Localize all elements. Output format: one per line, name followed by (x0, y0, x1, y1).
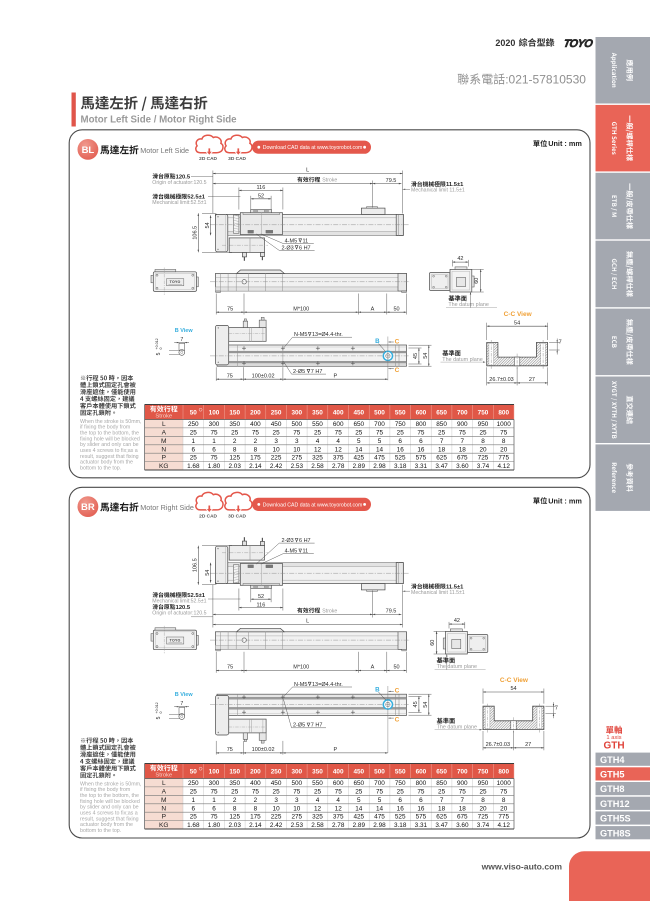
svg-text:BR: BR (81, 502, 95, 513)
svg-text:0: 0 (159, 348, 163, 350)
svg-text:75: 75 (227, 747, 233, 753)
svg-text:45: 45 (413, 701, 419, 707)
svg-text:75: 75 (227, 665, 233, 671)
svg-text:25: 25 (397, 429, 405, 436)
svg-text:B: B (375, 686, 380, 693)
svg-text:625: 625 (436, 455, 447, 462)
svg-text:8: 8 (481, 438, 485, 445)
svg-text:B View: B View (175, 328, 194, 334)
svg-text:25: 25 (190, 788, 198, 795)
svg-text:bottom to the top.: bottom to the top. (80, 828, 121, 834)
svg-text:1: 1 (192, 797, 196, 804)
svg-text:25: 25 (231, 429, 239, 436)
svg-text:L: L (162, 421, 166, 428)
svg-text:5: 5 (156, 352, 162, 355)
svg-text:2.53: 2.53 (291, 822, 304, 829)
svg-text:Stroke: Stroke (322, 609, 337, 615)
svg-text:2: 2 (254, 438, 258, 445)
svg-text:GTH8: GTH8 (600, 784, 625, 794)
svg-text:2.03: 2.03 (228, 463, 241, 470)
svg-text:25: 25 (314, 788, 322, 795)
svg-text:2.14: 2.14 (249, 822, 262, 829)
svg-text:TOYO: TOYO (170, 280, 181, 284)
svg-text:The datum plane: The datum plane (437, 664, 477, 670)
svg-text:3.74: 3.74 (477, 822, 490, 829)
svg-text:75: 75 (376, 429, 384, 436)
svg-text:800: 800 (416, 421, 427, 428)
svg-text:3D CAD: 3D CAD (228, 156, 246, 162)
svg-text:6: 6 (398, 438, 402, 445)
svg-text:P: P (162, 814, 167, 821)
svg-text:20: 20 (479, 805, 487, 812)
svg-text:450: 450 (353, 768, 364, 775)
svg-text:525: 525 (395, 814, 406, 821)
svg-text:325: 325 (312, 814, 323, 821)
svg-text:L: L (306, 167, 309, 173)
svg-text:C-C View: C-C View (504, 311, 533, 318)
svg-text:Mechanical limit:52.5±1: Mechanical limit:52.5±1 (152, 200, 206, 206)
svg-text:550: 550 (395, 409, 406, 416)
svg-text:600: 600 (416, 768, 427, 775)
svg-text:12: 12 (314, 446, 322, 453)
svg-text:425: 425 (353, 455, 364, 462)
svg-text:575: 575 (416, 814, 427, 821)
svg-text:A: A (162, 788, 167, 795)
svg-text:BL: BL (82, 145, 95, 156)
svg-text:54: 54 (205, 222, 211, 228)
svg-text:475: 475 (374, 455, 385, 462)
svg-text:750: 750 (478, 768, 489, 775)
svg-text:7: 7 (440, 797, 444, 804)
svg-text:200: 200 (250, 409, 261, 416)
svg-text:100: 100 (209, 409, 220, 416)
svg-text:775: 775 (498, 814, 509, 821)
svg-text:1: 1 (212, 438, 216, 445)
svg-text:625: 625 (436, 814, 447, 821)
svg-text:Download CAD data at www.toyor: Download CAD data at www.toyorobot.com (263, 502, 362, 508)
svg-text:250: 250 (271, 768, 282, 775)
svg-text:300: 300 (209, 780, 220, 787)
svg-text:bottom to the top.: bottom to the top. (80, 466, 121, 472)
svg-text:TOYO: TOYO (562, 38, 594, 50)
svg-text:4: 4 (316, 797, 320, 804)
svg-text:54: 54 (423, 353, 429, 359)
svg-text:A: A (371, 665, 375, 671)
svg-text:750: 750 (395, 421, 406, 428)
svg-text:800: 800 (498, 409, 509, 416)
svg-text:7: 7 (559, 340, 562, 346)
svg-text:5: 5 (156, 716, 162, 719)
svg-text:500: 500 (374, 409, 385, 416)
svg-text:7: 7 (461, 797, 465, 804)
svg-text:775: 775 (498, 455, 509, 462)
svg-text:12: 12 (335, 805, 343, 812)
svg-text:3.18: 3.18 (394, 463, 407, 470)
svg-text:300: 300 (209, 421, 220, 428)
svg-text:3D CAD: 3D CAD (228, 513, 246, 519)
svg-text:950: 950 (478, 421, 489, 428)
svg-text:75: 75 (210, 788, 218, 795)
svg-text:950: 950 (478, 780, 489, 787)
svg-text:1.68: 1.68 (187, 822, 200, 829)
svg-text:25: 25 (314, 429, 322, 436)
svg-text:N: N (161, 446, 166, 453)
svg-text:650: 650 (436, 768, 447, 775)
svg-text:Download CAD data at www.toyor: Download CAD data at www.toyorobot.com (263, 145, 362, 151)
svg-text:18: 18 (438, 446, 446, 453)
svg-text:350: 350 (229, 421, 240, 428)
svg-text:75: 75 (227, 306, 233, 312)
svg-text:The datum plane: The datum plane (448, 302, 488, 308)
svg-text:750: 750 (478, 409, 489, 416)
svg-text:2: 2 (254, 797, 258, 804)
svg-text:Unit : mm: Unit : mm (548, 139, 582, 148)
svg-text:75: 75 (500, 429, 508, 436)
svg-text:700: 700 (457, 768, 468, 775)
svg-text:8: 8 (502, 438, 506, 445)
svg-text:75: 75 (335, 788, 343, 795)
svg-text:3.60: 3.60 (456, 463, 469, 470)
svg-text:54: 54 (514, 320, 520, 326)
svg-text:6: 6 (212, 805, 216, 812)
svg-text:Origin of actuator:120.5: Origin of actuator:120.5 (152, 180, 206, 186)
svg-text:6: 6 (192, 446, 196, 453)
svg-text:100: 100 (209, 768, 220, 775)
svg-text:27: 27 (525, 742, 531, 748)
svg-text:300: 300 (291, 768, 302, 775)
svg-text:Stroke: Stroke (322, 178, 337, 184)
svg-text:M*100: M*100 (293, 306, 309, 312)
svg-text:106.5: 106.5 (193, 558, 199, 572)
svg-text:700: 700 (457, 409, 468, 416)
svg-text:75: 75 (376, 788, 384, 795)
svg-text:100±0.02: 100±0.02 (252, 747, 275, 753)
svg-text:3.47: 3.47 (435, 822, 448, 829)
svg-text:400: 400 (250, 780, 261, 787)
svg-text:350: 350 (312, 768, 323, 775)
svg-text:GTH5: GTH5 (600, 770, 625, 780)
svg-text:125: 125 (229, 455, 240, 462)
svg-text:75: 75 (335, 429, 343, 436)
svg-text:225: 225 (271, 455, 282, 462)
svg-text:1000: 1000 (497, 780, 512, 787)
svg-text:50: 50 (393, 306, 399, 312)
svg-text:525: 525 (395, 455, 406, 462)
svg-text:475: 475 (374, 814, 385, 821)
svg-text:1: 1 (192, 438, 196, 445)
svg-text:79.5: 79.5 (386, 178, 397, 184)
svg-text:1.80: 1.80 (208, 822, 221, 829)
svg-text:500: 500 (291, 421, 302, 428)
svg-text:650: 650 (353, 780, 364, 787)
svg-text:2.58: 2.58 (311, 463, 324, 470)
svg-text:14: 14 (376, 446, 384, 453)
svg-text:2.98: 2.98 (373, 822, 386, 829)
svg-text:14: 14 (355, 805, 363, 812)
svg-text:3.74: 3.74 (477, 463, 490, 470)
svg-text:2.98: 2.98 (373, 463, 386, 470)
svg-text:3: 3 (295, 438, 299, 445)
svg-text:225: 225 (271, 814, 282, 821)
svg-text:10: 10 (273, 805, 281, 812)
svg-text:25: 25 (438, 429, 446, 436)
svg-text:4: 4 (316, 438, 320, 445)
svg-text:3.18: 3.18 (394, 822, 407, 829)
svg-text:2D CAD: 2D CAD (199, 513, 217, 519)
svg-text::021-57810530: :021-57810530 (505, 73, 586, 87)
svg-text:P: P (333, 747, 337, 753)
svg-text:1: 1 (212, 797, 216, 804)
svg-text:250: 250 (188, 780, 199, 787)
svg-text:75: 75 (252, 429, 260, 436)
svg-text:L: L (306, 618, 309, 624)
svg-text:75: 75 (252, 788, 260, 795)
svg-text:7: 7 (440, 438, 444, 445)
svg-text:375: 375 (333, 455, 344, 462)
svg-text:2.42: 2.42 (270, 822, 283, 829)
svg-text:GTH8S: GTH8S (600, 828, 631, 838)
svg-text:275: 275 (291, 814, 302, 821)
svg-text:75: 75 (293, 429, 301, 436)
svg-text:675: 675 (457, 455, 468, 462)
svg-text:106.5: 106.5 (193, 226, 199, 240)
svg-text:0: 0 (159, 712, 163, 714)
svg-text:C: C (395, 367, 400, 374)
svg-text:12: 12 (335, 446, 343, 453)
svg-text:20: 20 (500, 805, 508, 812)
svg-text:75: 75 (459, 788, 467, 795)
svg-text:50: 50 (190, 409, 198, 416)
svg-text:P: P (162, 455, 167, 462)
svg-text:6: 6 (398, 797, 402, 804)
svg-text:Stroke: Stroke (155, 773, 172, 779)
svg-text:2.42: 2.42 (270, 463, 283, 470)
svg-text:725: 725 (478, 455, 489, 462)
svg-text:75: 75 (417, 788, 425, 795)
svg-text:75: 75 (227, 374, 233, 380)
svg-text:12: 12 (314, 805, 322, 812)
svg-text:250: 250 (271, 409, 282, 416)
svg-text:550: 550 (312, 780, 323, 787)
svg-text:N: N (161, 805, 166, 812)
svg-text:C: C (395, 338, 400, 345)
svg-text:2.78: 2.78 (332, 822, 345, 829)
svg-text:27: 27 (529, 377, 535, 383)
svg-text:42: 42 (454, 618, 460, 624)
svg-text:100±0.02: 100±0.02 (252, 374, 275, 380)
svg-text:7: 7 (180, 337, 183, 343)
svg-text:116: 116 (257, 602, 266, 608)
svg-text:2.53: 2.53 (291, 463, 304, 470)
svg-text:5: 5 (357, 797, 361, 804)
svg-text:725: 725 (478, 814, 489, 821)
svg-text:2: 2 (233, 797, 237, 804)
svg-text:325: 325 (312, 455, 323, 462)
svg-text:400: 400 (333, 768, 344, 775)
svg-text:GTH4: GTH4 (600, 755, 625, 765)
svg-text:2.58: 2.58 (311, 822, 324, 829)
svg-text:2.03: 2.03 (228, 822, 241, 829)
svg-text:54: 54 (510, 686, 516, 692)
svg-text:2.89: 2.89 (353, 463, 366, 470)
svg-text:60: 60 (430, 640, 436, 646)
svg-text:B: B (375, 338, 380, 345)
svg-text:8: 8 (502, 797, 506, 804)
svg-text:8: 8 (254, 805, 258, 812)
svg-text:P: P (333, 374, 337, 380)
svg-text:7: 7 (555, 706, 558, 712)
svg-text:900: 900 (457, 780, 468, 787)
svg-text:850: 850 (436, 780, 447, 787)
svg-text:250: 250 (188, 421, 199, 428)
svg-text:16: 16 (397, 446, 405, 453)
svg-text:14: 14 (376, 805, 384, 812)
svg-text:75: 75 (293, 788, 301, 795)
svg-text:500: 500 (291, 780, 302, 787)
svg-text:450: 450 (271, 780, 282, 787)
svg-text:3: 3 (274, 438, 278, 445)
svg-text:8: 8 (233, 446, 237, 453)
svg-text:375: 375 (333, 814, 344, 821)
svg-text:Stroke: Stroke (155, 414, 172, 420)
svg-text:1.68: 1.68 (187, 463, 200, 470)
svg-text:25: 25 (438, 788, 446, 795)
svg-text:200: 200 (250, 768, 261, 775)
svg-text:400: 400 (333, 409, 344, 416)
svg-text:5: 5 (378, 438, 382, 445)
svg-text:50: 50 (190, 768, 198, 775)
svg-text:18: 18 (438, 805, 446, 812)
svg-text:C-C View: C-C View (500, 677, 529, 684)
svg-text:Motor Left Side / Motor Right: Motor Left Side / Motor Right Side (81, 114, 238, 125)
svg-text:26.7±0.03: 26.7±0.03 (486, 742, 510, 748)
svg-text:2.89: 2.89 (353, 822, 366, 829)
svg-text:A: A (162, 429, 167, 436)
svg-text:600: 600 (416, 409, 427, 416)
svg-text:16: 16 (417, 446, 425, 453)
svg-text:2.14: 2.14 (249, 463, 262, 470)
svg-text:8: 8 (233, 805, 237, 812)
svg-text:3: 3 (295, 797, 299, 804)
svg-text:18: 18 (459, 805, 467, 812)
svg-text:75: 75 (459, 429, 467, 436)
svg-text:275: 275 (291, 455, 302, 462)
svg-text:5: 5 (357, 438, 361, 445)
svg-text:25: 25 (231, 788, 239, 795)
svg-text:650: 650 (436, 409, 447, 416)
svg-text:KG: KG (159, 822, 169, 829)
svg-text:18: 18 (459, 446, 467, 453)
svg-text:C: C (395, 717, 400, 724)
svg-text:1.80: 1.80 (208, 463, 221, 470)
svg-text:54: 54 (423, 702, 429, 708)
svg-text:2: 2 (233, 438, 237, 445)
svg-text:1000: 1000 (497, 421, 512, 428)
svg-text:4: 4 (336, 438, 340, 445)
svg-text:6: 6 (192, 805, 196, 812)
svg-text:25: 25 (190, 455, 198, 462)
svg-text:3.47: 3.47 (435, 463, 448, 470)
svg-text:Mechanical limit 11.5±1: Mechanical limit 11.5±1 (411, 590, 465, 596)
svg-text:25: 25 (273, 429, 281, 436)
svg-text:75: 75 (500, 788, 508, 795)
svg-text:TOYO: TOYO (170, 639, 181, 643)
svg-text:3.31: 3.31 (415, 463, 428, 470)
svg-text:6: 6 (419, 438, 423, 445)
svg-text:550: 550 (312, 421, 323, 428)
svg-text:20: 20 (500, 446, 508, 453)
svg-text:75: 75 (210, 814, 218, 821)
svg-text:7: 7 (180, 701, 183, 707)
svg-text:54: 54 (205, 570, 211, 576)
svg-text:GTH: GTH (603, 741, 624, 752)
svg-text:4: 4 (336, 797, 340, 804)
svg-text:6: 6 (212, 446, 216, 453)
svg-text:16: 16 (417, 805, 425, 812)
svg-text:10: 10 (293, 446, 301, 453)
svg-text:800: 800 (416, 780, 427, 787)
svg-text:800: 800 (498, 768, 509, 775)
svg-text:4.12: 4.12 (497, 822, 510, 829)
svg-text:175: 175 (250, 814, 261, 821)
svg-text:14: 14 (355, 446, 363, 453)
svg-text:75: 75 (210, 455, 218, 462)
svg-text:2D CAD: 2D CAD (199, 156, 217, 162)
svg-text:GTH12: GTH12 (600, 799, 630, 809)
svg-text:45: 45 (413, 353, 419, 359)
svg-text:450: 450 (271, 421, 282, 428)
svg-text:575: 575 (416, 455, 427, 462)
svg-text:8: 8 (254, 446, 258, 453)
svg-text:700: 700 (374, 780, 385, 787)
svg-text:M: M (161, 797, 167, 804)
svg-text:79.5: 79.5 (386, 609, 397, 615)
svg-text:25: 25 (273, 788, 281, 795)
svg-text:25: 25 (397, 788, 405, 795)
svg-text:450: 450 (353, 409, 364, 416)
svg-text:4.12: 4.12 (497, 463, 510, 470)
svg-text:52: 52 (258, 194, 264, 200)
svg-text:850: 850 (436, 421, 447, 428)
svg-text:116: 116 (257, 185, 266, 191)
svg-text:3: 3 (274, 797, 278, 804)
svg-text:42: 42 (457, 256, 463, 262)
svg-text:700: 700 (374, 421, 385, 428)
svg-text:Mechanical limit 11.5±1: Mechanical limit 11.5±1 (411, 188, 465, 194)
svg-text:L: L (162, 780, 166, 787)
svg-text:KG: KG (159, 463, 169, 470)
svg-text:550: 550 (395, 768, 406, 775)
svg-text:M*100: M*100 (293, 665, 309, 671)
svg-text:75: 75 (210, 429, 218, 436)
svg-text:B View: B View (175, 692, 194, 698)
svg-text:3.60: 3.60 (456, 822, 469, 829)
svg-text:Origin of actuator:120.5: Origin of actuator:120.5 (152, 610, 206, 616)
svg-text:20: 20 (479, 446, 487, 453)
svg-text:25: 25 (479, 429, 487, 436)
svg-text:750: 750 (395, 780, 406, 787)
svg-text:600: 600 (333, 780, 344, 787)
svg-text:Motor Right Side: Motor Right Side (140, 503, 194, 512)
svg-text:Unit : mm: Unit : mm (548, 496, 582, 505)
svg-text:A: A (371, 306, 375, 312)
svg-text:150: 150 (229, 768, 240, 775)
svg-text:300: 300 (291, 409, 302, 416)
svg-text:425: 425 (353, 814, 364, 821)
svg-text:52: 52 (258, 594, 264, 600)
svg-text:350: 350 (312, 409, 323, 416)
svg-text:25: 25 (190, 429, 198, 436)
